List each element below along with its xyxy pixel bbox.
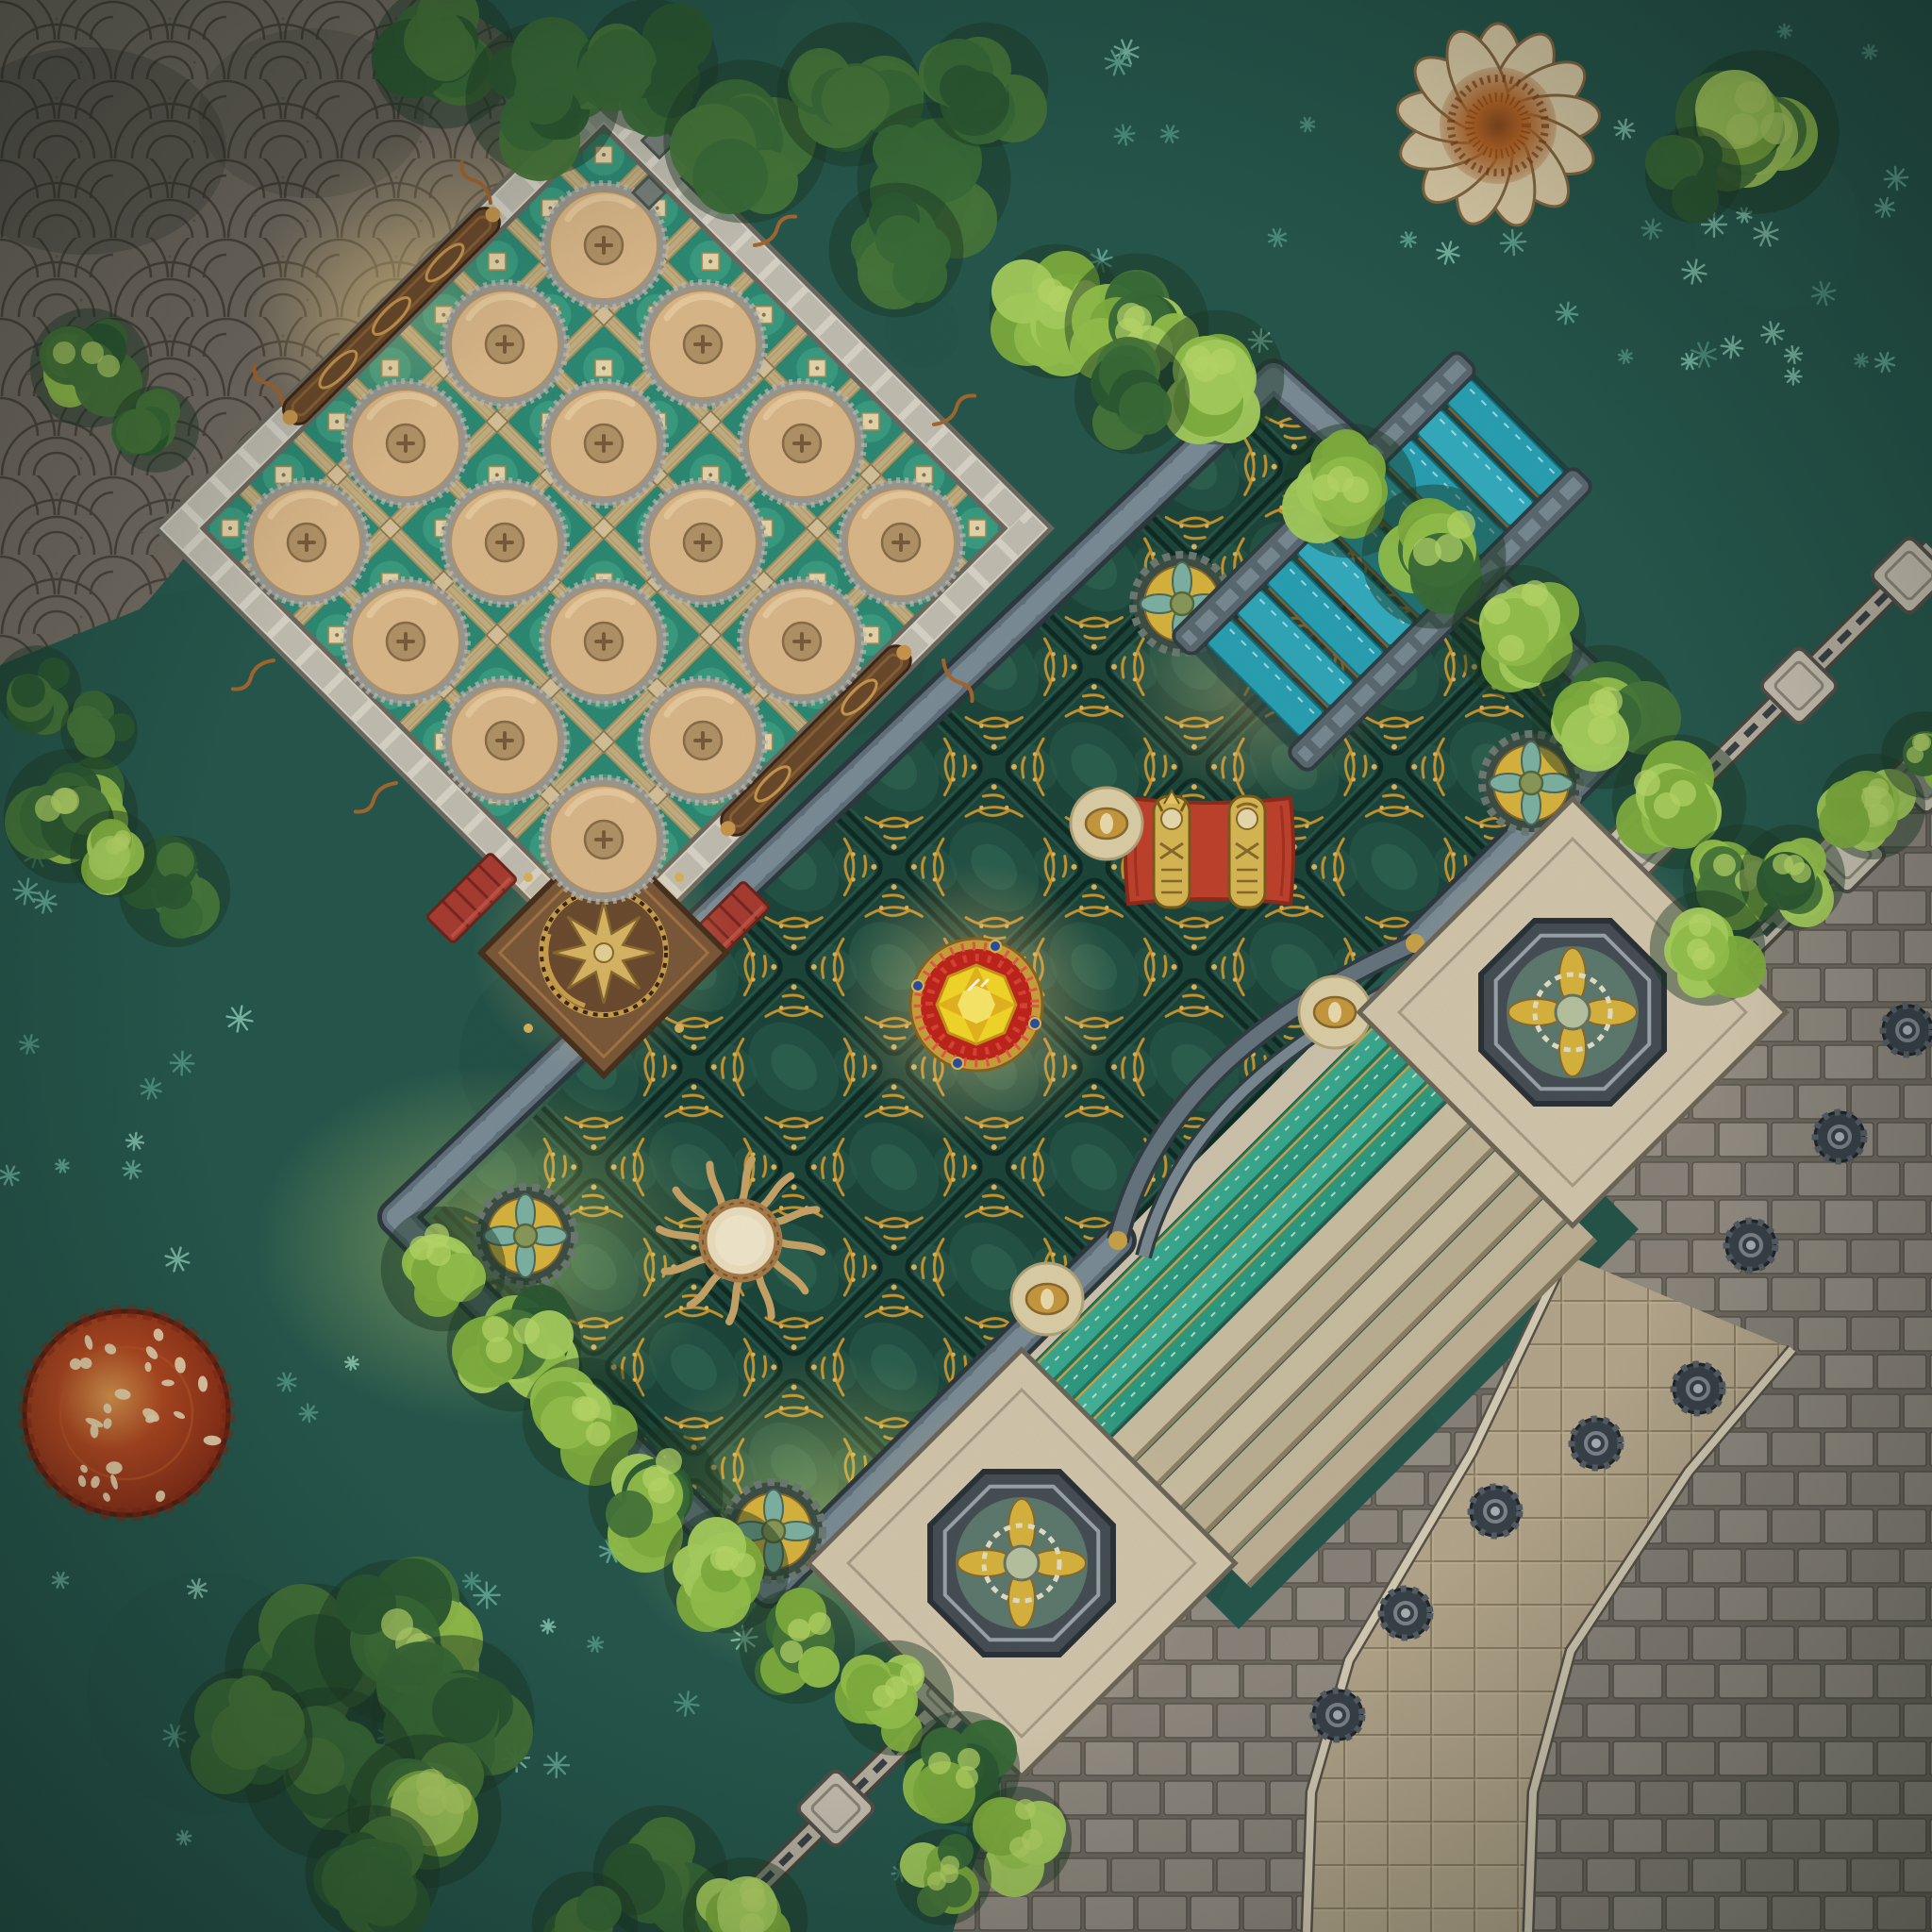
map-canvas: Top-down fantasy temple battle map (0, 0, 1932, 1932)
battle-map: Top-down fantasy temple battle map (0, 0, 1932, 1932)
paper-grain (0, 0, 1932, 1932)
